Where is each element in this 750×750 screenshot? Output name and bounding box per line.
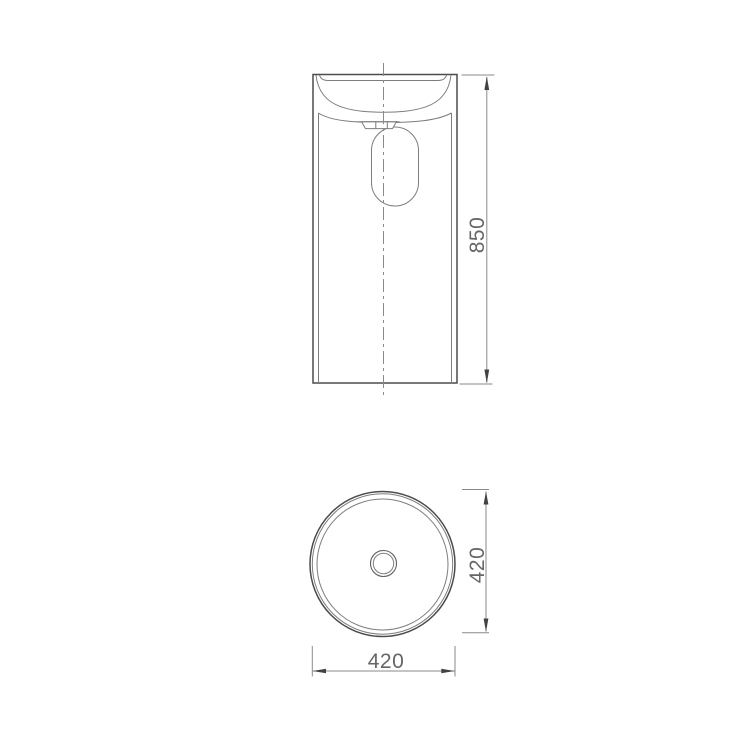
drain-inner-circle xyxy=(373,553,393,573)
dimension-label-420-vertical: 420 xyxy=(466,547,489,584)
arrow-right-icon xyxy=(441,669,454,674)
dimension-diameter-vertical-420: 420 xyxy=(462,490,489,633)
drawing-canvas: 850 420 xyxy=(0,0,750,750)
dimension-height-850: 850 xyxy=(460,75,495,384)
arrow-down-icon xyxy=(484,619,489,632)
bowl-inner-circle xyxy=(317,499,448,630)
dimension-label-850: 850 xyxy=(466,217,489,254)
drain-outer-circle xyxy=(371,551,397,577)
drain-fitting-body xyxy=(362,122,397,129)
basin-underside-curve xyxy=(319,113,452,123)
top-plan-view: 420 420 xyxy=(310,490,489,677)
rim-outer-circle xyxy=(310,492,455,637)
arrow-up-icon xyxy=(484,76,489,90)
pedestal-outline xyxy=(313,75,457,384)
arrow-up-icon xyxy=(484,491,489,504)
rim-edge-circle xyxy=(312,494,452,634)
drawing-sheet: 850 420 xyxy=(0,0,750,750)
arrow-down-icon xyxy=(484,370,489,384)
arrow-left-icon xyxy=(313,669,326,674)
dimension-diameter-horizontal-420: 420 xyxy=(312,646,455,677)
front-elevation-view: 850 xyxy=(313,63,495,396)
dimension-label-420-horizontal: 420 xyxy=(368,650,405,673)
bottle-trap xyxy=(372,127,419,206)
